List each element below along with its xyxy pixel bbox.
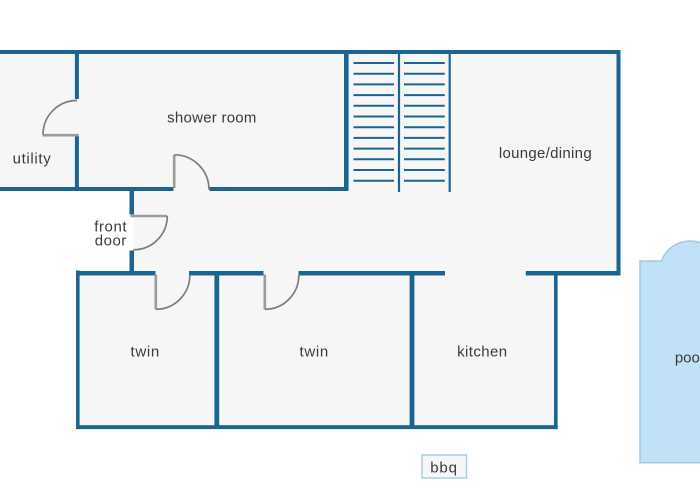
svg-text:kitchen: kitchen xyxy=(457,343,507,360)
svg-text:shower room: shower room xyxy=(167,110,256,127)
svg-text:bbq: bbq xyxy=(430,460,457,477)
svg-text:pool: pool xyxy=(675,350,700,367)
svg-text:twin: twin xyxy=(299,343,328,360)
svg-text:twin: twin xyxy=(130,343,159,360)
svg-text:door: door xyxy=(95,233,127,250)
svg-text:utility: utility xyxy=(13,151,52,168)
svg-text:lounge/dining: lounge/dining xyxy=(499,145,592,162)
